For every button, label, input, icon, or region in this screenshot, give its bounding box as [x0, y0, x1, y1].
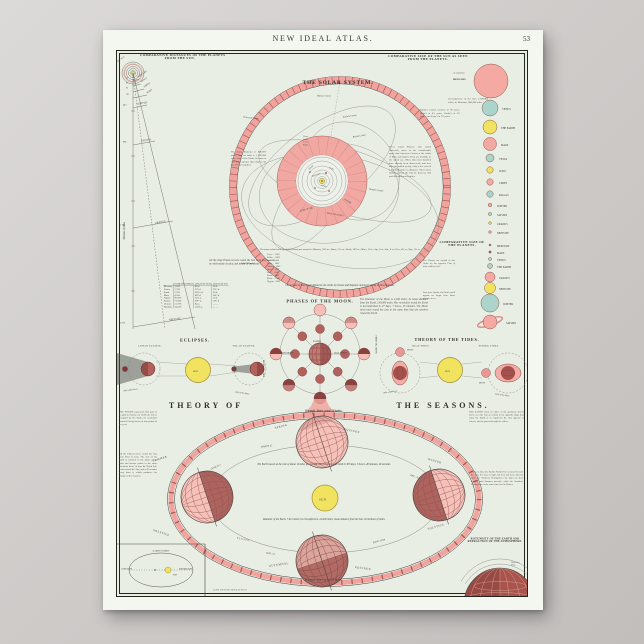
- planet-size-item-jupiter: JUPITER: [503, 303, 513, 306]
- sun-size-item-uranus: URANUS: [497, 223, 508, 226]
- rotundity-observer-label: Observer's Place: [511, 561, 526, 566]
- sun-size-item-earth: THE EARTH: [501, 127, 515, 130]
- solar-left-note: The Sun's diameter is 860,000 miles, and…: [231, 151, 266, 167]
- planet-size-note1: The Planets are ranked in this Order by …: [423, 259, 455, 268]
- sun-size-title: COMPARATIVE SIZE OF THE SUN AS SEENFROM …: [378, 55, 478, 61]
- perihelion-label: PERIHELION: [179, 568, 192, 570]
- halley-comet-label: Halley's Comet: [317, 95, 331, 97]
- first-quarter-label: FIRST QUARTER: [263, 360, 265, 378]
- planet-size-item-neptune: NEPTUNE: [499, 288, 511, 291]
- phases-earth-label: EARTH: [313, 341, 321, 343]
- seasons-left-note2: All the Planets move round the Sun from …: [119, 453, 157, 478]
- tides-title: THEORY OF THE TIDES.: [397, 338, 497, 342]
- phases-diagram: [270, 304, 370, 416]
- small-planets-label: Small Planets: [241, 263, 254, 265]
- phases-title: PHASES OF THE MOON.: [270, 299, 370, 304]
- eclipses-diagram: [117, 353, 266, 385]
- tides-diagram: [380, 348, 527, 394]
- rotundity-title: ROTUNDITY OF THE EARTH ANDREFRACTION OF …: [455, 538, 528, 543]
- sun-size-item-saturn: SATURN: [497, 214, 507, 217]
- distances-value-mars: 141: [126, 93, 129, 95]
- planet-size-title: COMPARATIVE SIZE OFTHE PLANETS.: [422, 241, 502, 247]
- solar-right-note: These small Planets, also called Asteroi…: [389, 146, 431, 179]
- spring-tides-label: SPRING TIDES.: [469, 345, 509, 348]
- small-planets-list: Ceres . . 1801 Pallas . . 1802 Juno . . …: [267, 253, 295, 283]
- sun-size-item-neptune: NEPTUNE: [497, 232, 509, 235]
- poster-scene: NEW IDEAL ATLAS. 53: [0, 0, 644, 644]
- distances-arcvalue-saturn: 886: [123, 141, 126, 143]
- sun-size-item-jupiter: JUPITER: [497, 205, 507, 208]
- sun-size-item-mars: MARS: [501, 144, 508, 147]
- neap-tides-label: NEAP TIDES.: [401, 345, 441, 348]
- asteroid-ring-names: Vesta Juno Ceres Pallas: [303, 135, 327, 146]
- distances-arcvalue-neptune: 2,793: [120, 322, 125, 324]
- solar-eclipse-label: SOLAR ECLIPSE.: [224, 345, 264, 348]
- sun-size-note: Circumference of the Sun, 2,700,000 mile…: [448, 98, 488, 105]
- planet-table-rows: Mercury3,00088 d.24 h.Venus7,700225 d.23…: [163, 285, 229, 308]
- third-quarter-label: THIRD QUARTER: [375, 335, 377, 353]
- seasons-center-note1: The Earth travels at the rate of about 1…: [249, 463, 399, 466]
- aphelion-label: APHELION: [121, 568, 132, 570]
- distances-value-earth: 93: [126, 87, 128, 89]
- planet-size-item-earth: THE EARTH: [497, 266, 511, 269]
- as-seen-from-label: As seen from: [453, 72, 465, 74]
- halley-note: Halley's Comet revolves in 76 years, Bie…: [420, 109, 460, 119]
- sun-size-item-vesta: VESTA: [499, 158, 507, 161]
- phases-note: The Diameter of the Moon is 2,160 miles;…: [360, 298, 428, 316]
- seasons-left-note1: THE FIGURE represents that part of its p…: [119, 411, 157, 427]
- plate-artwork: [117, 51, 527, 596]
- imprint: COPR. BY RAND, McNALLY & CO.: [195, 589, 265, 591]
- spring-moon-label: MOON: [479, 382, 485, 384]
- seasons-sun-label: SUN: [319, 499, 327, 502]
- seasons-right-note2: When in June the Earth's North Pole is t…: [471, 471, 523, 487]
- inset-sun-label: SUN: [173, 574, 177, 576]
- sun-size-item-pallas: PALLAS: [499, 194, 509, 197]
- eclipses-sun-label: SUN: [193, 370, 198, 373]
- distances-value-mercury: 36: [126, 77, 128, 79]
- neap-moon-label: MOON: [407, 349, 413, 351]
- tides-sun-label: SUN: [445, 370, 450, 373]
- seasons-title-left: THEORY OF: [136, 402, 276, 410]
- orbit-inset-title: EARTH'S ORBIT: [141, 550, 181, 552]
- velocity-note: The mean orbital velocity of the Planets…: [245, 249, 435, 251]
- planet-size-item-venus: VENUS: [497, 259, 506, 262]
- seasons-center-note2: Diameter of the Earth, 7,912 miles; its …: [249, 518, 399, 521]
- planet-size-item-saturn: SATURN: [506, 322, 516, 325]
- page-number: 53: [523, 35, 530, 43]
- planet-size-item-uranus: URANUS: [499, 277, 510, 280]
- planet-size-item-mercury: MERCURY: [497, 245, 510, 248]
- seasons-title-right: THE SEASONS.: [373, 402, 513, 410]
- sun-size-item-ceres: CERES: [499, 182, 507, 185]
- outer-planets-note: On account of their great distances, the…: [280, 284, 400, 287]
- lunar-eclipse-label: LUNAR ECLIPSE.: [130, 345, 170, 348]
- full-moon-label: FULL MOON: [334, 352, 347, 354]
- planet-size-diagram: [477, 244, 504, 329]
- equal-day-night-top: Equal Day and Night.: [294, 409, 354, 413]
- sun-size-item-venus: VENUS: [502, 108, 511, 111]
- solar-system-title: THE SOLAR SYSTEM.: [288, 80, 388, 86]
- planet-table: Diameter in Miles Length of Year Length …: [163, 283, 258, 309]
- atlas-title: NEW IDEAL ATLAS.: [103, 34, 543, 43]
- distances-arcvalue-jupiter: 483: [123, 104, 126, 106]
- distances-axis-label: Millions of Miles: [124, 222, 127, 240]
- sun-size-mercury-label: MERCURY: [453, 78, 466, 81]
- distances-value-venus: 67: [126, 82, 128, 84]
- distances-title: COMPARATIVE DISTANCES OF THE PLANETSFROM…: [140, 54, 220, 60]
- equal-day-night-bottom: Equal Day and Night.: [294, 578, 354, 582]
- atlas-page: NEW IDEAL ATLAS. 53: [103, 30, 543, 610]
- sun-size-item-juno: JUNO: [499, 170, 506, 173]
- new-moon-label: NEW MOON: [281, 352, 293, 354]
- planet-size-item-mars: MARS: [497, 252, 504, 255]
- map-frame: COMPARATIVE DISTANCES OF THE PLANETSFROM…: [116, 50, 528, 597]
- eclipses-title: ECLIPSES.: [160, 338, 230, 343]
- seasons-right-note1: THE EARTH when in either of the position…: [469, 411, 524, 423]
